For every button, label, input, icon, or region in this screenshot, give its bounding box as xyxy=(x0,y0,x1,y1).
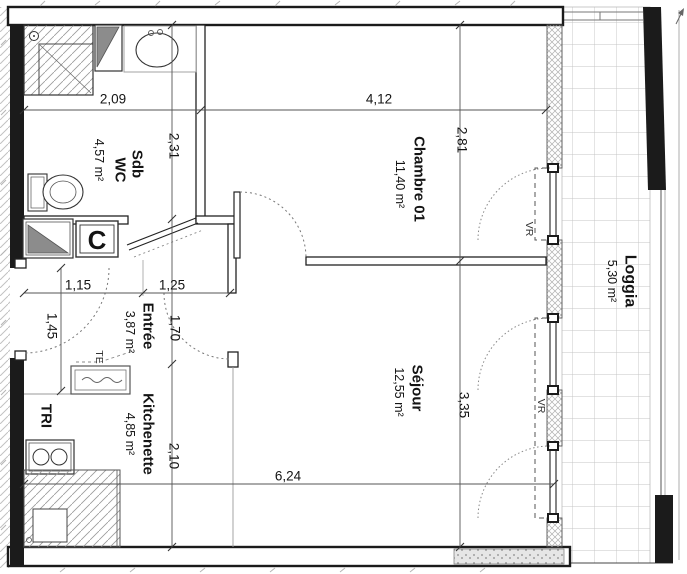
room-sdb-line2: WC xyxy=(112,158,129,183)
room-loggia-name: Loggia xyxy=(622,255,639,308)
dim-entree-width-right: 1,25 xyxy=(159,278,185,293)
toilet-fixture xyxy=(28,174,83,211)
shower-fixture xyxy=(24,25,93,95)
shutter-chambre-label: VR xyxy=(523,222,535,237)
shutter-sejour-label: VR xyxy=(535,399,547,414)
left-wall-upper xyxy=(10,25,24,268)
room-sejour-area: 12,55 m² xyxy=(392,367,406,416)
room-entree-name: Entrée xyxy=(140,303,157,350)
facade-sill-band xyxy=(454,549,564,564)
room-chambre-area: 11,40 m² xyxy=(393,160,407,208)
floor-plan-svg: C xyxy=(0,0,687,574)
floor-plan-page: C xyxy=(0,0,687,574)
dim-entree-height: 1,70 xyxy=(168,315,183,341)
loggia-wall-bottom-right xyxy=(655,495,673,563)
dim-sejour-height: 3,35 xyxy=(457,392,472,418)
room-sdb-line1: Sdb xyxy=(129,150,146,178)
dim-chambre-width: 4,12 xyxy=(366,92,392,107)
water-heater-fixture xyxy=(23,219,73,258)
dim-sdb-width: 2,09 xyxy=(100,92,126,107)
room-loggia-area: 5,30 m² xyxy=(605,260,619,302)
cooktop-fixture xyxy=(26,440,74,474)
dim-chambre-height: 2,81 xyxy=(455,127,470,153)
closet-box: C xyxy=(76,221,118,257)
dim-entree-width-left: 1,15 xyxy=(65,278,91,293)
room-chambre-name: Chambre 01 xyxy=(411,136,428,222)
room-tri-name: TRI xyxy=(38,404,55,428)
dim-entree-door: 1,45 xyxy=(45,313,60,339)
room-entree-area: 3,87 m² xyxy=(123,311,137,353)
closet-label: C xyxy=(88,225,107,255)
dim-living-width: 6,24 xyxy=(275,469,302,484)
party-wall-hatch xyxy=(0,7,10,568)
top-exterior-wall xyxy=(8,7,563,25)
room-kitchenette-name: Kitchenette xyxy=(140,393,157,475)
room-kitchenette-area: 4,85 m² xyxy=(123,413,137,455)
appliance-column-fixture xyxy=(95,25,122,71)
room-sdb-area: 4,57 m² xyxy=(92,139,106,181)
room-sejour-name: Séjour xyxy=(409,365,426,412)
left-wall-lower xyxy=(10,358,24,566)
counter-fixture xyxy=(24,470,120,547)
electrical-panel-label: TE xyxy=(93,350,105,363)
dim-kitchenette-height: 2,10 xyxy=(167,443,182,469)
washbasin-fixture xyxy=(124,26,196,72)
dim-sdb-height: 2,31 xyxy=(167,133,182,159)
